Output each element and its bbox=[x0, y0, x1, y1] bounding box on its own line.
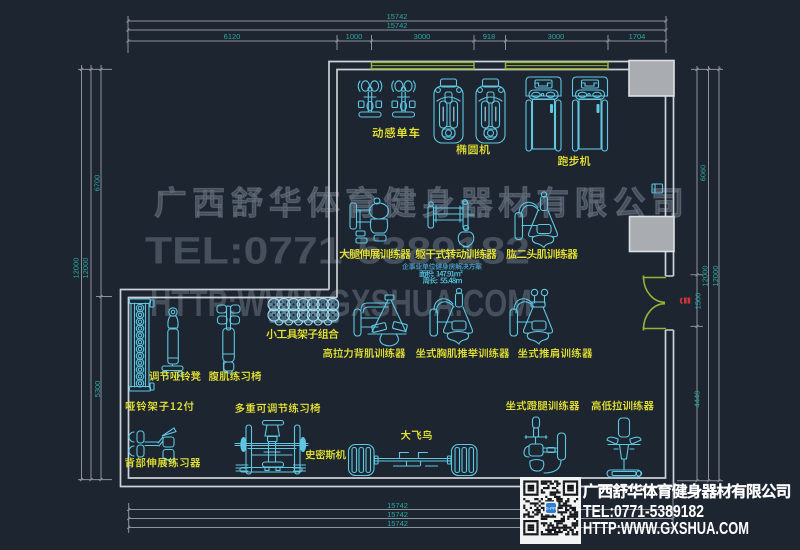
svg-text:3000: 3000 bbox=[548, 32, 565, 41]
svg-text:918: 918 bbox=[483, 32, 496, 41]
svg-text:S-PR: S-PR bbox=[546, 506, 558, 511]
svg-text:12000: 12000 bbox=[701, 266, 710, 287]
svg-text:6060: 6060 bbox=[699, 165, 708, 182]
svg-text:15742: 15742 bbox=[387, 519, 408, 528]
svg-text:1500: 1500 bbox=[694, 293, 703, 310]
svg-text:15742: 15742 bbox=[387, 510, 408, 519]
svg-text:15742: 15742 bbox=[387, 501, 408, 510]
svg-text:5300: 5300 bbox=[93, 381, 102, 398]
svg-text:15742: 15742 bbox=[387, 12, 408, 21]
svg-text:12000: 12000 bbox=[711, 266, 720, 287]
svg-text:1000: 1000 bbox=[346, 32, 363, 41]
svg-text:HTTP:WWW.GXSHUA.COM: HTTP:WWW.GXSHUA.COM bbox=[583, 518, 749, 538]
svg-text:6700: 6700 bbox=[93, 175, 102, 192]
svg-text:3000: 3000 bbox=[414, 32, 431, 41]
svg-text:12000: 12000 bbox=[72, 258, 81, 279]
svg-text:12000: 12000 bbox=[81, 258, 90, 279]
svg-text:4440: 4440 bbox=[693, 391, 702, 408]
svg-text:1704: 1704 bbox=[629, 32, 646, 41]
svg-text:15742: 15742 bbox=[387, 21, 408, 30]
svg-text:6120: 6120 bbox=[224, 32, 241, 41]
